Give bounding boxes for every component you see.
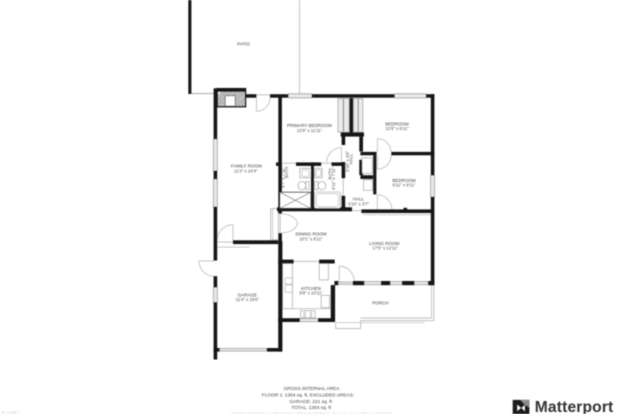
svg-text:10'1" x 8'11": 10'1" x 8'11" — [299, 236, 323, 241]
svg-text:4'11" x 7'11": 4'11" x 7'11" — [331, 167, 336, 190]
svg-text:12'9" x 9'11": 12'9" x 9'11" — [385, 126, 409, 131]
svg-text:PORCH: PORCH — [372, 301, 388, 306]
svg-text:12'9" x 11'11": 12'9" x 11'11" — [297, 128, 323, 133]
svg-text:9'8" x 10'11": 9'8" x 10'11" — [299, 290, 323, 295]
svg-text:11'2" x 24'4": 11'2" x 24'4" — [234, 168, 258, 173]
svg-text:5'7" x 7'11": 5'7" x 7'11" — [280, 167, 285, 188]
svg-text:FLOOR 1: 1304 sq. ft, EXCLUDED: FLOOR 1: 1304 sq. ft, EXCLUDED AREAS: — [262, 392, 354, 398]
svg-text:9'11" x 9'11": 9'11" x 9'11" — [393, 183, 416, 188]
svg-text:PATIO: PATIO — [237, 42, 250, 47]
svg-text:3'10" x 4'5": 3'10" x 4'5" — [345, 150, 350, 172]
svg-text:Matterport: Matterport — [535, 399, 614, 414]
svg-text:GARAGE: 221 sq. ft: GARAGE: 221 sq. ft — [289, 399, 332, 405]
svg-text:11'4" x 19'6": 11'4" x 19'6" — [236, 297, 260, 302]
svg-text:GROSS INTERNAL AREA: GROSS INTERNAL AREA — [284, 386, 341, 392]
svg-text:TOTAL: 1304 sq. ft: TOTAL: 1304 sq. ft — [291, 405, 331, 411]
svg-text:17'5" x 12'11": 17'5" x 12'11" — [372, 246, 398, 251]
svg-text:FLOOR 1: FLOOR 1 — [2, 411, 21, 414]
svg-text:3'10" x 3'7": 3'10" x 3'7" — [348, 201, 370, 206]
